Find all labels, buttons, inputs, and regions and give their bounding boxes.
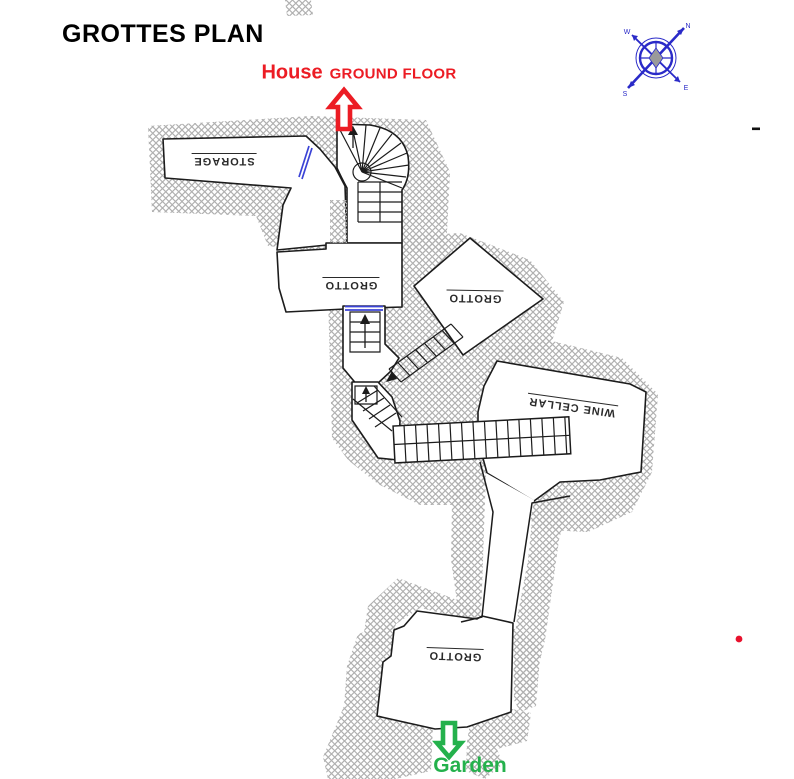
house-ground-floor-annotation: House GROUND FLOOR (261, 62, 456, 85)
room-stairwell-outline (337, 124, 409, 243)
house-label: House (261, 62, 322, 85)
page-title: GROTTES PLAN (62, 20, 264, 49)
floor-plan-drawing: N E S W (0, 0, 794, 779)
ground-floor-label: GROUND FLOOR (330, 66, 457, 83)
compass-w-label: W (624, 29, 631, 36)
red-dot-marker (736, 636, 743, 643)
rock-hatch-patch (285, 0, 313, 16)
room-label-grotto-2: GROTTO (446, 290, 503, 305)
garden-annotation: Garden (433, 754, 507, 778)
grottes-plan-canvas: N E S W GROTTES PLAN House GROUND FLOOR … (0, 0, 794, 779)
room-label-grotto-1: GROTTO (323, 277, 380, 291)
compass-n-label: N (685, 23, 690, 30)
compass-rose-icon: N E S W (623, 23, 691, 98)
rock-hatch-patch (330, 200, 347, 243)
compass-s-label: S (623, 91, 628, 98)
stray-dash-mark (752, 128, 760, 131)
room-grotto3-outline (377, 611, 513, 729)
room-label-storage: STORAGE (191, 153, 256, 167)
compass-e-label: E (684, 85, 689, 92)
room-label-grotto-3: GROTTO (426, 647, 483, 663)
